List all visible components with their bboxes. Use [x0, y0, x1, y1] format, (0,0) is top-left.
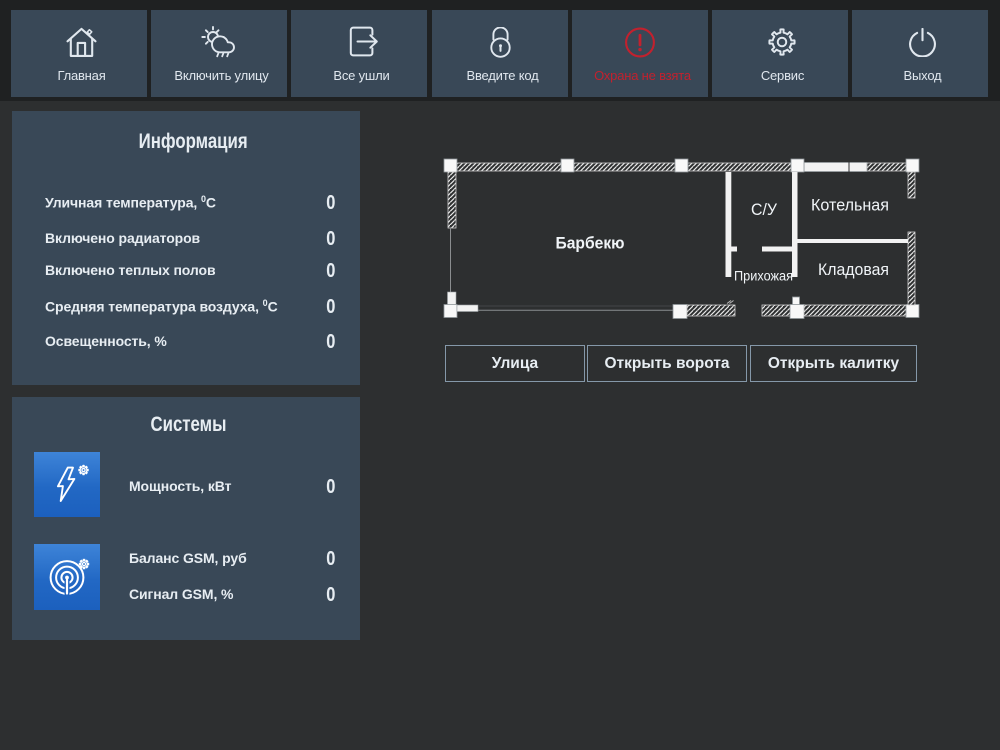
- svg-text:Барбекю: Барбекю: [556, 234, 625, 253]
- svg-text:Кладовая: Кладовая: [818, 261, 889, 279]
- svg-text:С/У: С/У: [751, 201, 777, 219]
- svg-text:Котельная: Котельная: [811, 197, 889, 215]
- svg-text:Прихожая: Прихожая: [734, 269, 793, 284]
